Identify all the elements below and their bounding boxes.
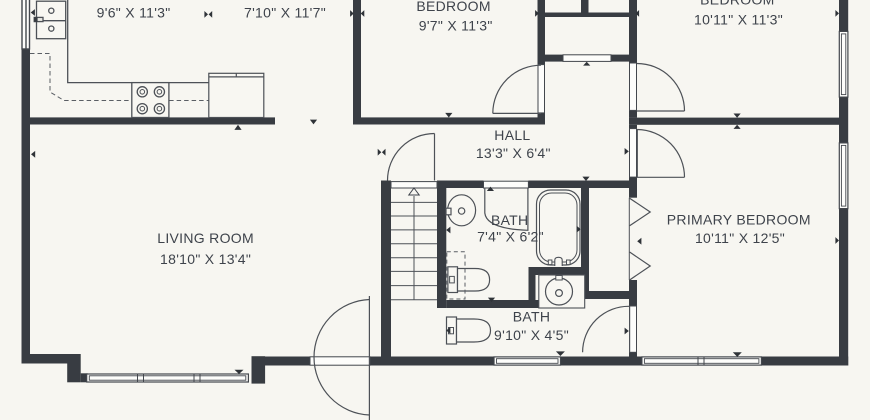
svg-text:LIVING ROOM: LIVING ROOM xyxy=(157,230,254,246)
svg-text:PRIMARY BEDROOM: PRIMARY BEDROOM xyxy=(667,212,811,228)
svg-text:BATH: BATH xyxy=(491,212,529,228)
svg-text:BEDROOM: BEDROOM xyxy=(416,0,490,14)
svg-text:BEDROOM: BEDROOM xyxy=(700,0,774,8)
svg-text:9'6" X 11'3": 9'6" X 11'3" xyxy=(97,4,171,20)
svg-text:HALL: HALL xyxy=(494,127,530,143)
svg-text:BATH: BATH xyxy=(513,309,551,325)
svg-text:10'11" X 12'5": 10'11" X 12'5" xyxy=(695,230,785,246)
svg-text:7'4" X 6'2": 7'4" X 6'2" xyxy=(477,228,544,244)
svg-text:9'7" X 11'3": 9'7" X 11'3" xyxy=(419,17,493,33)
svg-text:9'10" X 4'5": 9'10" X 4'5" xyxy=(494,327,569,343)
svg-text:7'10" X 11'7": 7'10" X 11'7" xyxy=(244,5,326,21)
svg-text:10'11" X 11'3": 10'11" X 11'3" xyxy=(694,12,783,28)
svg-text:18'10" X 13'4": 18'10" X 13'4" xyxy=(160,251,251,267)
svg-text:13'3" X 6'4": 13'3" X 6'4" xyxy=(476,145,551,161)
